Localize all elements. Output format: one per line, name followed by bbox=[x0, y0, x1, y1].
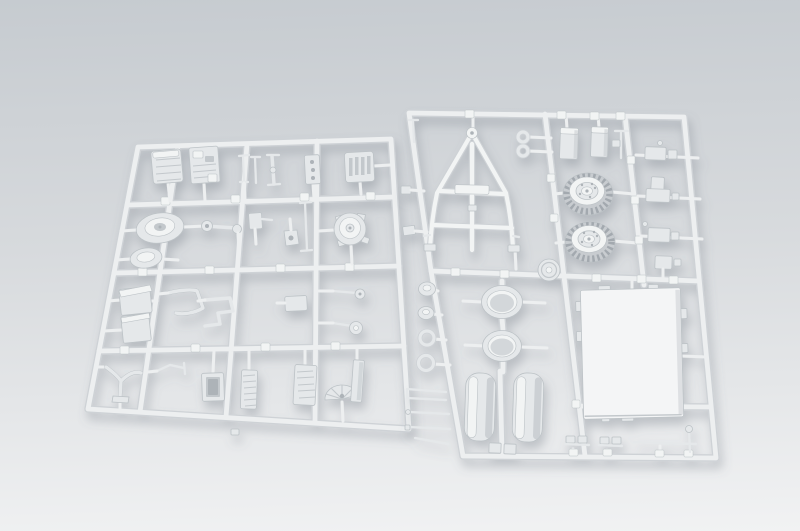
tire-tab bbox=[489, 443, 501, 453]
differential-housing bbox=[319, 213, 370, 264]
rod-disc-a bbox=[319, 289, 365, 299]
side-plate bbox=[351, 347, 365, 402]
hub-rings bbox=[419, 331, 435, 371]
rim-ring bbox=[482, 286, 523, 319]
fender-block bbox=[151, 149, 184, 201]
stand-small bbox=[284, 219, 299, 246]
product-photo bbox=[0, 0, 800, 531]
t-rod bbox=[267, 155, 280, 185]
rod-disc-b bbox=[318, 322, 363, 335]
tow-eye-rings bbox=[518, 132, 528, 156]
cover-drum-large bbox=[121, 210, 205, 246]
tire-tab bbox=[504, 444, 516, 454]
plate-small bbox=[277, 295, 307, 311]
rib-rack-a bbox=[240, 350, 257, 409]
floor-panel bbox=[575, 284, 690, 423]
right-sprue bbox=[401, 110, 716, 458]
tie-rod bbox=[634, 426, 696, 453]
stowage-box-pair bbox=[559, 127, 608, 160]
left-sprue bbox=[88, 139, 409, 435]
engine-block bbox=[189, 146, 220, 201]
wishbone-bracket bbox=[97, 367, 141, 409]
slotted-box bbox=[344, 151, 390, 194]
bracket-small bbox=[248, 213, 272, 244]
step-bracket bbox=[198, 298, 233, 326]
bracket-cluster bbox=[655, 256, 681, 279]
control-lever bbox=[148, 363, 185, 374]
road-wheel bbox=[563, 173, 613, 215]
cover-drum-small bbox=[116, 246, 178, 270]
gate-nub bbox=[231, 429, 239, 435]
tire-half bbox=[464, 372, 496, 441]
bent-tow-rod bbox=[158, 290, 203, 314]
drawbar-a-frame bbox=[424, 128, 520, 253]
rim-ring bbox=[483, 331, 522, 362]
mold-stamp-disc bbox=[538, 259, 560, 281]
axle-hub bbox=[202, 221, 242, 247]
tire-half bbox=[512, 372, 544, 442]
clamp-small bbox=[599, 437, 622, 446]
open-box bbox=[202, 351, 225, 401]
mast-rod bbox=[300, 202, 312, 251]
road-wheel bbox=[565, 222, 615, 262]
